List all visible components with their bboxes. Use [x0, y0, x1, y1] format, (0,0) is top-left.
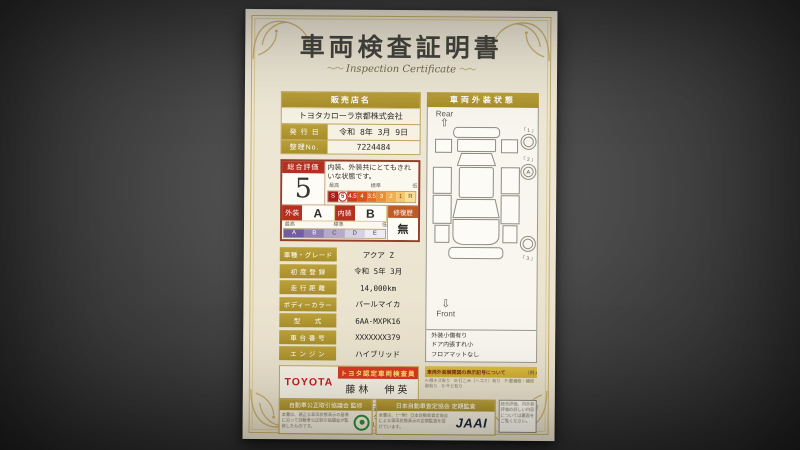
- exterior-grade-value: A: [302, 205, 335, 220]
- tailgate-shape: [458, 139, 496, 151]
- left-front-door-shape: [433, 195, 451, 223]
- issue-date-row: 発 行 日 令和 8年 3月 9日: [282, 123, 420, 140]
- car-exploded-diagram: 「 1 」 「 2 」 「 3 」 A: [428, 125, 537, 322]
- serial-no-value: 7224484: [327, 140, 419, 154]
- detail-row: 車種・グレード アクア Z: [280, 246, 420, 263]
- subtitle-ornament: 〜〜: [327, 64, 343, 74]
- certificate-document: 車両検査証明書 〜〜 Inspection Certificate 〜〜 販売店…: [243, 9, 558, 441]
- fair-trade-council-text: 本書は、適正な車両状態表示の基準に沿って自動車公正取引協議会が監修したものです。: [282, 412, 352, 429]
- inspector-name: 藤林 伸英: [338, 378, 418, 399]
- left-rear-door-shape: [433, 167, 451, 193]
- grade-scale-segment: S: [328, 191, 338, 201]
- exterior-diagram-panel: Rear ⇧: [425, 107, 539, 363]
- inspector-box: TOYOTA トヨタ認定車両検査員 藤林 伸英: [279, 365, 419, 400]
- repair-history-label: 修復歴: [388, 206, 418, 218]
- appraisal-association-box: 日本自動車査定協会 定期監査 本書は、（一財）日本自動車査定協会による車両状態表…: [376, 399, 496, 436]
- detail-value: 令和 5年 3月: [337, 266, 420, 278]
- windshield-shape: [453, 199, 499, 217]
- grade-scale-segment: 4.5: [348, 192, 358, 202]
- grade-scale-segment: 2: [386, 192, 396, 202]
- scale-high-label: 最高: [285, 222, 295, 227]
- detail-label: 車 台 番 号: [279, 330, 336, 344]
- interior-exterior-scale-bar: A B C D E: [283, 228, 386, 239]
- photo-backdrop: 車両検査証明書 〜〜 Inspection Certificate 〜〜 販売店…: [0, 0, 800, 450]
- jaai-logo: JAAI: [451, 413, 493, 432]
- rear-bumper-shape: [454, 127, 500, 137]
- wheel-1-inner: [524, 137, 534, 147]
- symbol-legend-bar: 車両外装展開図の表示記号について （例:A1） 線キズの程度等の場合: [425, 366, 537, 378]
- detail-value: パールマイカ: [336, 299, 419, 311]
- condition-note: フロアマットなし: [431, 351, 479, 361]
- roof-shape: [459, 167, 493, 197]
- wheel-3-inner: [523, 239, 533, 249]
- repair-history-cell: 修復歴 無: [387, 206, 418, 240]
- letter-scale-segment: B: [304, 229, 324, 237]
- detail-label: エ ン ジ ン: [279, 346, 336, 360]
- letter-scale-labels: 最高 標準 低: [283, 222, 389, 228]
- detail-label: 走 行 距 離: [280, 280, 337, 294]
- right-rear-door-shape: [501, 168, 519, 194]
- subtitle-ornament: 〜〜: [459, 65, 475, 75]
- scale-standard-label: 標準: [371, 184, 381, 189]
- vehicle-details-table: 車種・グレード アクア Z 初 度 登 録 令和 5年 3月 走 行 距 離 1…: [279, 246, 420, 362]
- detail-value: ハイブリッド: [336, 348, 419, 360]
- detail-row: 車 台 番 号 XXXXXXX379: [279, 329, 419, 346]
- appraisal-association-text: 本書は、（一財）日本自動車査定協会による車両状態表示の定期監査を受けています。: [379, 413, 449, 430]
- right-column: 車両外装状態 Rear ⇧: [425, 92, 539, 394]
- hood-shape: [453, 219, 499, 244]
- detail-row: エ ン ジ ン ハイブリッド: [279, 345, 419, 362]
- letter-scale-segment: E: [365, 230, 385, 238]
- detail-row: 走 行 距 離 14,000km: [280, 279, 420, 296]
- grade-scale-segment: 3.5: [367, 192, 377, 202]
- wheel-1-label: 「 1 」: [521, 128, 537, 134]
- symbol-legend-example: （例:A1） 線キズの程度等の場合: [525, 369, 537, 377]
- grade-scale-labels: 最高 標準 低: [327, 183, 419, 189]
- grade-scale-segment: 4: [357, 192, 367, 202]
- letter-scale-segment: A: [284, 229, 304, 237]
- scale-low-label: 低: [382, 223, 387, 228]
- certificate-title: 車両検査証明書: [245, 27, 557, 65]
- grade-scale-segment: 3: [377, 192, 387, 202]
- letter-scale-segment: C: [324, 229, 344, 237]
- grade-scale-segment: R: [406, 192, 416, 202]
- overall-grade-scale-bar: S 5 4.5 4 3.5 3 2 1 R: [327, 190, 416, 203]
- scale-high-label: 最高: [329, 184, 339, 189]
- condition-notes: 外装小傷有り ドア内張すれ小 フロアマットなし: [431, 332, 479, 360]
- repair-history-value: 無: [388, 218, 418, 240]
- footer-row: 自動車公正取引協議会 監修 本書は、適正な車両状態表示の基準に沿って自動車公正取…: [279, 398, 537, 436]
- evaluation-box: 総合評価 5 内装、外装共にとてもきれいな状態です。 最高 標準 低 S 5: [280, 159, 421, 242]
- rear-window-shape: [457, 153, 495, 165]
- exterior-label: 外装: [282, 205, 302, 220]
- serial-no-row: 整理No. 7224484: [281, 139, 419, 154]
- back-side-note: 総合評価、内外装評価の詳しい内容については裏面をご覧ください。: [500, 402, 534, 425]
- condition-note: 外装小傷有り: [431, 332, 479, 342]
- symbol-legend-line: A-線キズ有り B-打こみ（ヘコミ）有り P-要補修・補修跡有り S-サビ有り: [425, 378, 537, 390]
- interior-grade-value: B: [355, 206, 388, 221]
- interior-label: 内装: [335, 206, 355, 221]
- toyota-logo: TOYOTA: [280, 366, 338, 398]
- overall-grade-label: 総合評価: [282, 161, 324, 173]
- detail-row: ボディーカラー パールマイカ: [279, 296, 419, 313]
- certificate-subtitle-row: 〜〜 Inspection Certificate 〜〜: [245, 61, 557, 76]
- right-front-door-shape: [501, 196, 519, 224]
- certified-inspector-banner: トヨタ認定車両検査員: [338, 366, 418, 379]
- detail-row: 初 度 登 録 令和 5年 3月: [280, 263, 420, 280]
- fair-trade-council-title: 自動車公正取引協議会 監修: [280, 399, 372, 411]
- left-column: 販売店名 トヨタカローラ京都株式会社 発 行 日 令和 8年 3月 9日 整理N…: [279, 91, 421, 426]
- detail-value: アクア Z: [337, 249, 420, 261]
- overall-grade-cell: 総合評価 5: [282, 161, 325, 204]
- appraisal-association-title: 日本自動車査定協会 定期監査: [377, 400, 495, 412]
- fair-trade-council-box: 自動車公正取引協議会 監修 本書は、適正な車両状態表示の基準に沿って自動車公正取…: [279, 398, 373, 435]
- symbol-legend-title: 車両外装展開図の表示記号について: [427, 368, 506, 376]
- front-direction: ⇩ Front: [436, 299, 455, 318]
- scale-standard-label: 標準: [333, 223, 343, 228]
- wheel-3-label: 「 3 」: [520, 256, 536, 262]
- panel-divider: [426, 329, 536, 331]
- serial-no-label: 整理No.: [281, 140, 327, 153]
- dealer-table: 販売店名 トヨタカローラ京都株式会社 発 行 日 令和 8年 3月 9日 整理N…: [280, 91, 420, 155]
- left-fender-shape: [435, 225, 449, 242]
- right-quarter-panel-shape: [502, 140, 518, 153]
- evaluation-comment: 内装、外装共にとてもきれいな状態です。: [327, 163, 416, 183]
- issue-date-label: 発 行 日: [282, 124, 328, 139]
- detail-label: 車種・グレード: [280, 247, 337, 261]
- front-label: Front: [436, 310, 455, 318]
- detail-value: 6AA-MXPK16: [336, 316, 419, 326]
- back-side-note-box: 総合評価、内外装評価の詳しい内容については裏面をご覧ください。: [498, 400, 536, 433]
- dealer-name-header: 販売店名: [282, 92, 420, 108]
- detail-value: XXXXXXX379: [336, 333, 419, 343]
- detail-row: 型 式 6AA-MXPK16: [279, 312, 419, 329]
- wheel-2-label: 「 2 」: [521, 157, 537, 163]
- exterior-panel-header: 車両外装状態: [427, 92, 539, 108]
- detail-label: 初 度 登 録: [280, 264, 337, 278]
- detail-label: ボディーカラー: [279, 297, 336, 311]
- grade-scale-segment: 1: [396, 192, 406, 202]
- condition-note: ドア内張すれ小: [431, 342, 479, 352]
- dealer-name-value: トヨタカローラ京都株式会社: [282, 107, 420, 124]
- fair-trade-emblem-icon: [354, 414, 370, 430]
- front-bumper-shape: [449, 247, 503, 258]
- grade-scale-segment-selected: 5: [338, 192, 348, 202]
- detail-value: 14,000km: [337, 283, 420, 293]
- issue-date-value: 令和 8年 3月 9日: [328, 124, 420, 140]
- wheel-flaw-mark: A: [527, 170, 531, 176]
- overall-grade-value: 5: [282, 173, 324, 204]
- letter-scale-segment: D: [345, 230, 365, 238]
- left-quarter-panel-shape: [436, 139, 452, 152]
- detail-label: 型 式: [279, 313, 336, 327]
- right-fender-shape: [503, 226, 517, 243]
- scale-low-label: 低: [412, 184, 417, 189]
- certificate-subtitle: Inspection Certificate: [346, 64, 456, 76]
- symbol-legend-lines: A-線キズ有り B-打こみ（ヘコミ）有り P-要補修・補修跡有り S-サビ有り …: [425, 378, 537, 394]
